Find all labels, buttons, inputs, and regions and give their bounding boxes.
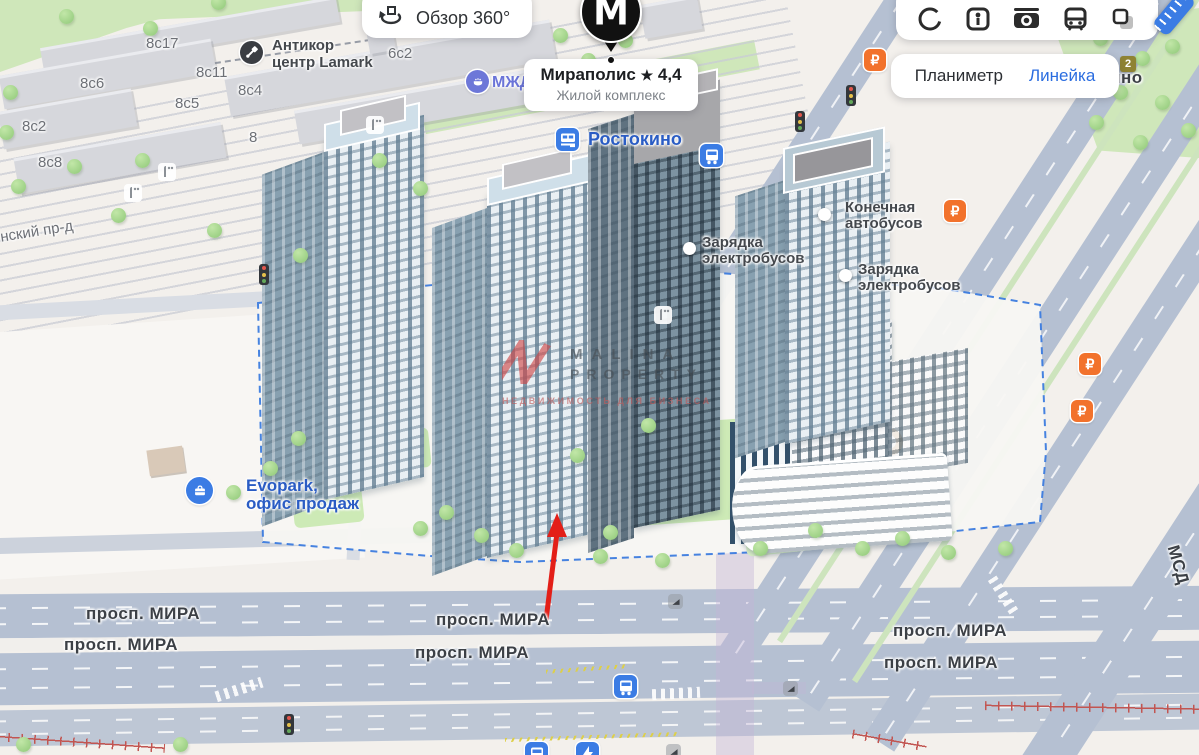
parking-icon[interactable]: ₽: [1079, 353, 1101, 375]
map-label: просп. МИРА: [64, 636, 178, 654]
watermark-logo: [502, 340, 560, 384]
pin-anchor-dot: [607, 56, 615, 64]
pin-letter: M: [593, 0, 629, 34]
tree-icon: [67, 159, 82, 174]
tree-icon: [941, 545, 956, 560]
watermark-brand-top: MALINA: [570, 346, 703, 363]
tree-icon: [895, 531, 910, 546]
tree-icon: [655, 553, 670, 568]
traffic-light-icon: [846, 85, 856, 106]
map-canvas[interactable]: MALINA PROPERTY НЕДВИЖИМОСТЬ ДЛЯ БИЗНЕСА…: [0, 0, 1199, 755]
route-count-badge: 2: [1120, 56, 1136, 72]
tree-icon: [1165, 39, 1180, 54]
complex-subtitle: Жилой комплекс: [534, 87, 688, 103]
tree-icon: [413, 521, 428, 536]
camera-icon[interactable]: [1012, 6, 1041, 33]
tree-icon: [3, 85, 18, 100]
transport-icon[interactable]: [1062, 6, 1089, 33]
ruler-tab[interactable]: Линейка: [1029, 66, 1095, 86]
traffic-light-icon: [284, 714, 294, 735]
360-rotate-icon: [376, 5, 406, 31]
tree-icon: [207, 223, 222, 238]
map-label: Evopark,: [246, 477, 318, 495]
street-view-icon[interactable]: [965, 6, 992, 33]
rating-value: 4,4: [658, 65, 682, 84]
parking-icon[interactable]: ₽: [1071, 400, 1093, 422]
copy-icon[interactable]: [1110, 6, 1137, 33]
tree-icon: [1181, 123, 1196, 138]
tree-icon: [111, 208, 126, 223]
map-label: электробусов: [702, 251, 805, 267]
tree-icon: [1155, 95, 1170, 110]
tree-icon: [293, 248, 308, 263]
dot-icon[interactable]: [683, 242, 696, 255]
lamp-icon: [366, 116, 384, 134]
tree-icon: [439, 505, 454, 520]
panorama-icon[interactable]: [917, 6, 944, 33]
tree-icon: [1135, 51, 1150, 66]
tree-icon: [998, 541, 1013, 556]
tree-icon: [291, 431, 306, 446]
dot-icon[interactable]: [839, 269, 852, 282]
tree-icon: [855, 541, 870, 556]
watermark-brand-bottom: PROPERTY: [570, 366, 703, 382]
map-label: 8: [249, 130, 257, 146]
tree-icon: [808, 523, 823, 538]
complex-title: Мираполис: [540, 65, 635, 84]
tree-icon: [641, 418, 656, 433]
mirapolis-card[interactable]: Мираполис ★ 4,4 Жилой комплекс: [524, 59, 698, 111]
map-toolbar: [896, 0, 1158, 40]
tree-icon: [372, 153, 387, 168]
tree-icon: [753, 541, 768, 556]
tree-icon: [16, 737, 31, 752]
tree-icon: [135, 153, 150, 168]
planimeter-tab[interactable]: Планиметр: [915, 66, 1003, 86]
map-label: 8с17: [146, 36, 179, 52]
speed-bump-icon: [666, 744, 681, 755]
map-label: просп. МИРА: [884, 654, 998, 672]
tree-icon: [143, 21, 158, 36]
tree-icon: [59, 9, 74, 24]
map-label: Зарядка: [702, 235, 763, 251]
tree-icon: [1133, 135, 1148, 150]
tree-icon: [263, 461, 278, 476]
speed-bump-icon: [783, 681, 798, 696]
tree-icon: [1089, 115, 1104, 130]
watermark-tagline: НЕДВИЖИМОСТЬ ДЛЯ БИЗНЕСА: [502, 396, 712, 406]
antikor-icon[interactable]: [240, 41, 263, 64]
tree-icon: [173, 737, 188, 752]
tree-icon: [553, 28, 568, 43]
lamp-icon: [654, 306, 672, 324]
map-label: 8с8: [38, 155, 62, 171]
map-label: центр Lamark: [272, 55, 373, 71]
dot-icon[interactable]: [818, 208, 831, 221]
crosswalk: [652, 687, 701, 700]
map-label: электробусов: [858, 278, 961, 294]
tree-icon: [474, 528, 489, 543]
map-label: просп. МИРА: [436, 611, 550, 629]
traffic-light-icon: [795, 111, 805, 132]
map-label: 8с2: [22, 119, 46, 135]
tree-icon: [509, 543, 524, 558]
map-label: просп. МИРА: [893, 622, 1007, 640]
map-label: просп. МИРА: [415, 644, 529, 662]
map-label: офис продаж: [246, 495, 359, 513]
traffic-light-icon: [259, 264, 269, 285]
map-label: Ростокино: [588, 130, 682, 149]
view-360-button[interactable]: Обзор 360°: [362, 0, 532, 38]
bus-stop-icon[interactable]: [525, 742, 548, 755]
bus-stop-icon[interactable]: [700, 144, 723, 167]
map-label: автобусов: [845, 216, 922, 232]
charge-icon[interactable]: [576, 742, 599, 755]
map-label: 8с11: [196, 65, 227, 81]
small-building: [146, 446, 185, 477]
parking-icon[interactable]: ₽: [864, 49, 886, 71]
view-360-label: Обзор 360°: [416, 8, 510, 29]
watermark: MALINA PROPERTY НЕДВИЖИМОСТЬ ДЛЯ БИЗНЕСА: [502, 340, 712, 406]
measure-panel: Планиметр Линейка: [891, 54, 1119, 98]
map-label: 8с4: [238, 83, 262, 99]
planned-route-overlay: [716, 552, 754, 755]
map-label: 8с6: [80, 76, 104, 92]
tree-icon: [226, 485, 241, 500]
tree-icon: [570, 448, 585, 463]
building-tower-1: [262, 108, 427, 513]
map-label: 6с2: [388, 46, 412, 62]
evopark-icon[interactable]: [186, 477, 213, 504]
bus-stop-icon[interactable]: [614, 675, 637, 698]
parking-icon[interactable]: ₽: [944, 200, 966, 222]
map-label: Антикор: [272, 38, 334, 54]
speed-bump-icon: [668, 594, 683, 609]
tree-icon: [603, 525, 618, 540]
tree-icon: [593, 549, 608, 564]
tree-icon: [413, 181, 428, 196]
lamp-icon: [124, 184, 142, 202]
map-label: Зарядка: [858, 262, 919, 278]
station-icon[interactable]: [556, 128, 579, 151]
tree-icon: [11, 179, 26, 194]
map-label: просп. МИРА: [86, 605, 200, 623]
map-label: Конечная: [845, 200, 915, 216]
building-tower-4: [735, 140, 890, 450]
lamp-icon: [158, 163, 176, 181]
map-label: 8с5: [175, 96, 199, 112]
mzhd-circle-icon[interactable]: [466, 70, 489, 93]
rating-star-icon: ★: [641, 67, 654, 83]
